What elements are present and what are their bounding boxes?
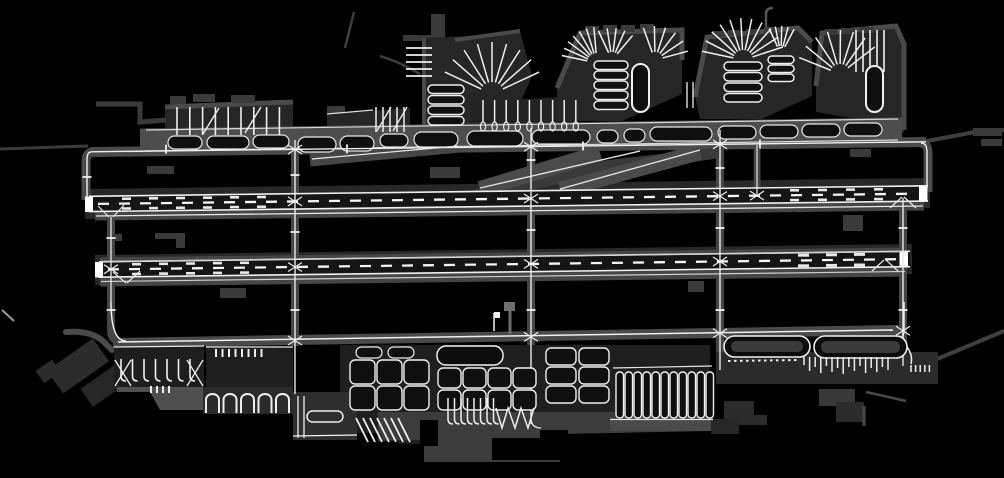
runway-1-touchdown-marks bbox=[203, 206, 212, 209]
runway-1-touchdown-marks bbox=[874, 188, 883, 191]
taxilane-island bbox=[207, 136, 249, 149]
taxilane-island bbox=[388, 347, 414, 358]
taxilane-island bbox=[380, 134, 408, 147]
runway-2-touchdown-marks bbox=[186, 262, 195, 265]
stand-row-narrow bbox=[670, 372, 678, 418]
building bbox=[843, 215, 863, 231]
runway-1-touchdown-marks bbox=[149, 197, 158, 200]
taxilane-island bbox=[802, 124, 840, 137]
stand-row bbox=[724, 62, 762, 71]
stand-row bbox=[768, 56, 794, 64]
stand-row-narrow bbox=[652, 372, 660, 418]
runway-1-touchdown-marks bbox=[257, 206, 266, 209]
building bbox=[981, 139, 1002, 146]
runway-2-touchdown-marks bbox=[186, 272, 195, 275]
taxilane-island bbox=[650, 127, 712, 141]
runway-2-touchdown-marks bbox=[213, 272, 222, 275]
apron-floor bbox=[293, 392, 357, 440]
gate-fan bbox=[781, 26, 782, 46]
apron-island-inner bbox=[821, 341, 900, 353]
stand-grid bbox=[350, 386, 375, 410]
stand-row bbox=[428, 106, 464, 115]
building bbox=[850, 149, 871, 157]
taxilane-island bbox=[414, 132, 458, 147]
runway-1-touchdown-marks bbox=[790, 189, 799, 192]
building bbox=[147, 166, 174, 174]
taxilane-island bbox=[168, 136, 202, 149]
runway-2-touchdown-marks bbox=[826, 264, 837, 267]
airport-layout-diagram bbox=[0, 0, 1004, 478]
runway-1-touchdown-marks bbox=[818, 189, 827, 192]
taxilane-island bbox=[467, 131, 523, 146]
runway-2-touchdown-marks bbox=[240, 262, 249, 265]
stand-grid bbox=[438, 368, 461, 388]
runway-2-touchdown-marks bbox=[798, 264, 809, 267]
stand-row-narrow bbox=[688, 372, 696, 418]
runway-2-touchdown-marks bbox=[159, 263, 168, 266]
building bbox=[973, 128, 1002, 136]
runway-1-touchdown-marks bbox=[846, 188, 855, 191]
building bbox=[176, 239, 185, 248]
taxilane-island bbox=[718, 126, 756, 139]
runway-1-touchdown-marks bbox=[203, 196, 212, 199]
building-silhouette bbox=[540, 430, 568, 460]
stand-row-narrow bbox=[643, 372, 651, 418]
runway-1-touchdown-marks bbox=[230, 206, 239, 209]
runway-1-touchdown-marks bbox=[122, 207, 131, 210]
runway-1-touchdown-marks bbox=[874, 198, 883, 201]
runway-1-touchdown-marks bbox=[257, 196, 266, 199]
terminal-building bbox=[621, 25, 635, 32]
stand-row-narrow bbox=[706, 372, 714, 418]
stand-grid bbox=[404, 360, 429, 384]
runway-2-touchdown-marks bbox=[854, 253, 865, 256]
runway-2-touchdown-marks bbox=[240, 271, 249, 274]
taxilane-island bbox=[844, 123, 882, 136]
runway-1-touchdown-marks bbox=[176, 207, 185, 210]
stand-row bbox=[594, 71, 628, 80]
runway-2-touchdown-marks bbox=[854, 264, 865, 267]
terminal-building bbox=[231, 95, 255, 103]
stand-row-narrow bbox=[625, 372, 633, 418]
apron-island bbox=[437, 346, 503, 365]
stand-grid bbox=[404, 386, 429, 410]
airport-diagram-canvas bbox=[0, 0, 1004, 478]
stand-row bbox=[724, 83, 762, 92]
runway-2-touchdown-marks bbox=[132, 263, 141, 266]
stand-grid bbox=[488, 368, 511, 388]
stand-row-narrow bbox=[661, 372, 669, 418]
stand-grid bbox=[513, 368, 536, 388]
stand-row bbox=[428, 96, 464, 105]
apron-island-inner bbox=[731, 341, 803, 352]
terminal-building bbox=[170, 96, 186, 104]
runway-1-touchdown-marks bbox=[230, 196, 239, 199]
stand-row bbox=[724, 94, 762, 103]
stand-grid bbox=[438, 390, 461, 410]
stand-grid bbox=[579, 348, 609, 365]
building-silhouette bbox=[492, 438, 540, 460]
stand-row-narrow bbox=[679, 372, 687, 418]
building bbox=[753, 415, 767, 425]
runway-1-touchdown-marks bbox=[176, 197, 185, 200]
stand-row bbox=[724, 73, 762, 82]
stand-ring bbox=[866, 66, 883, 112]
stand-grid bbox=[463, 368, 486, 388]
taxilane-island bbox=[356, 347, 382, 358]
pier-stem bbox=[431, 14, 445, 38]
taxilane-island bbox=[760, 125, 798, 138]
tower-head bbox=[504, 302, 515, 311]
terminal-building bbox=[603, 25, 617, 32]
building bbox=[836, 402, 864, 422]
runway-1-touchdown-marks bbox=[818, 199, 827, 202]
building bbox=[711, 419, 739, 434]
stand-grid bbox=[579, 367, 609, 384]
runway-2-touchdown-marks bbox=[213, 262, 222, 265]
stand-grid bbox=[579, 386, 609, 403]
runway-1-threshold bbox=[919, 186, 928, 202]
stand-ring bbox=[632, 64, 649, 112]
runway-2-touchdown-marks bbox=[159, 272, 168, 275]
runway-1-threshold bbox=[85, 197, 93, 213]
stand-row bbox=[768, 65, 794, 73]
taxilane-island bbox=[597, 130, 618, 143]
building-silhouette bbox=[596, 434, 706, 458]
stand-row-narrow bbox=[697, 372, 705, 418]
stand-grid bbox=[513, 390, 536, 410]
runway-1-touchdown-marks bbox=[846, 198, 855, 201]
terminal-building bbox=[193, 94, 215, 102]
building bbox=[220, 288, 246, 298]
terminal-building bbox=[640, 24, 654, 31]
building bbox=[327, 106, 345, 113]
terminal-building bbox=[825, 29, 837, 35]
stand-grid bbox=[377, 386, 402, 410]
stand-row bbox=[594, 61, 628, 70]
runway-1-touchdown-marks bbox=[149, 207, 158, 210]
west-apron-floor bbox=[203, 387, 293, 414]
stand-row bbox=[594, 91, 628, 100]
stand-row bbox=[428, 85, 464, 94]
stand-grid bbox=[546, 367, 576, 384]
runway-2-touchdown-marks bbox=[798, 254, 809, 257]
runway-2-touchdown-marks bbox=[826, 253, 837, 256]
stand-row-narrow bbox=[616, 372, 624, 418]
building bbox=[430, 167, 460, 178]
building bbox=[155, 233, 185, 239]
runway-2-threshold bbox=[95, 262, 103, 278]
stand-row bbox=[768, 74, 794, 82]
taxilane-island bbox=[624, 129, 645, 142]
runway-1-touchdown-marks bbox=[122, 197, 131, 200]
taxilane-island bbox=[253, 135, 289, 148]
terminal-building bbox=[860, 27, 874, 33]
stand-row bbox=[428, 117, 464, 126]
stand-row-narrow bbox=[634, 372, 642, 418]
building-silhouette bbox=[420, 420, 438, 446]
stand-grid bbox=[546, 348, 576, 365]
flag bbox=[494, 312, 500, 318]
stand-grid bbox=[377, 360, 402, 384]
runway-1-touchdown-marks bbox=[790, 199, 799, 202]
stand-row bbox=[594, 101, 628, 110]
stand-grid bbox=[546, 386, 576, 403]
runway-2-threshold bbox=[900, 252, 909, 268]
stand-grid bbox=[350, 360, 375, 384]
building bbox=[688, 281, 704, 292]
taxilane-island bbox=[532, 130, 590, 144]
stand-row bbox=[594, 81, 628, 90]
